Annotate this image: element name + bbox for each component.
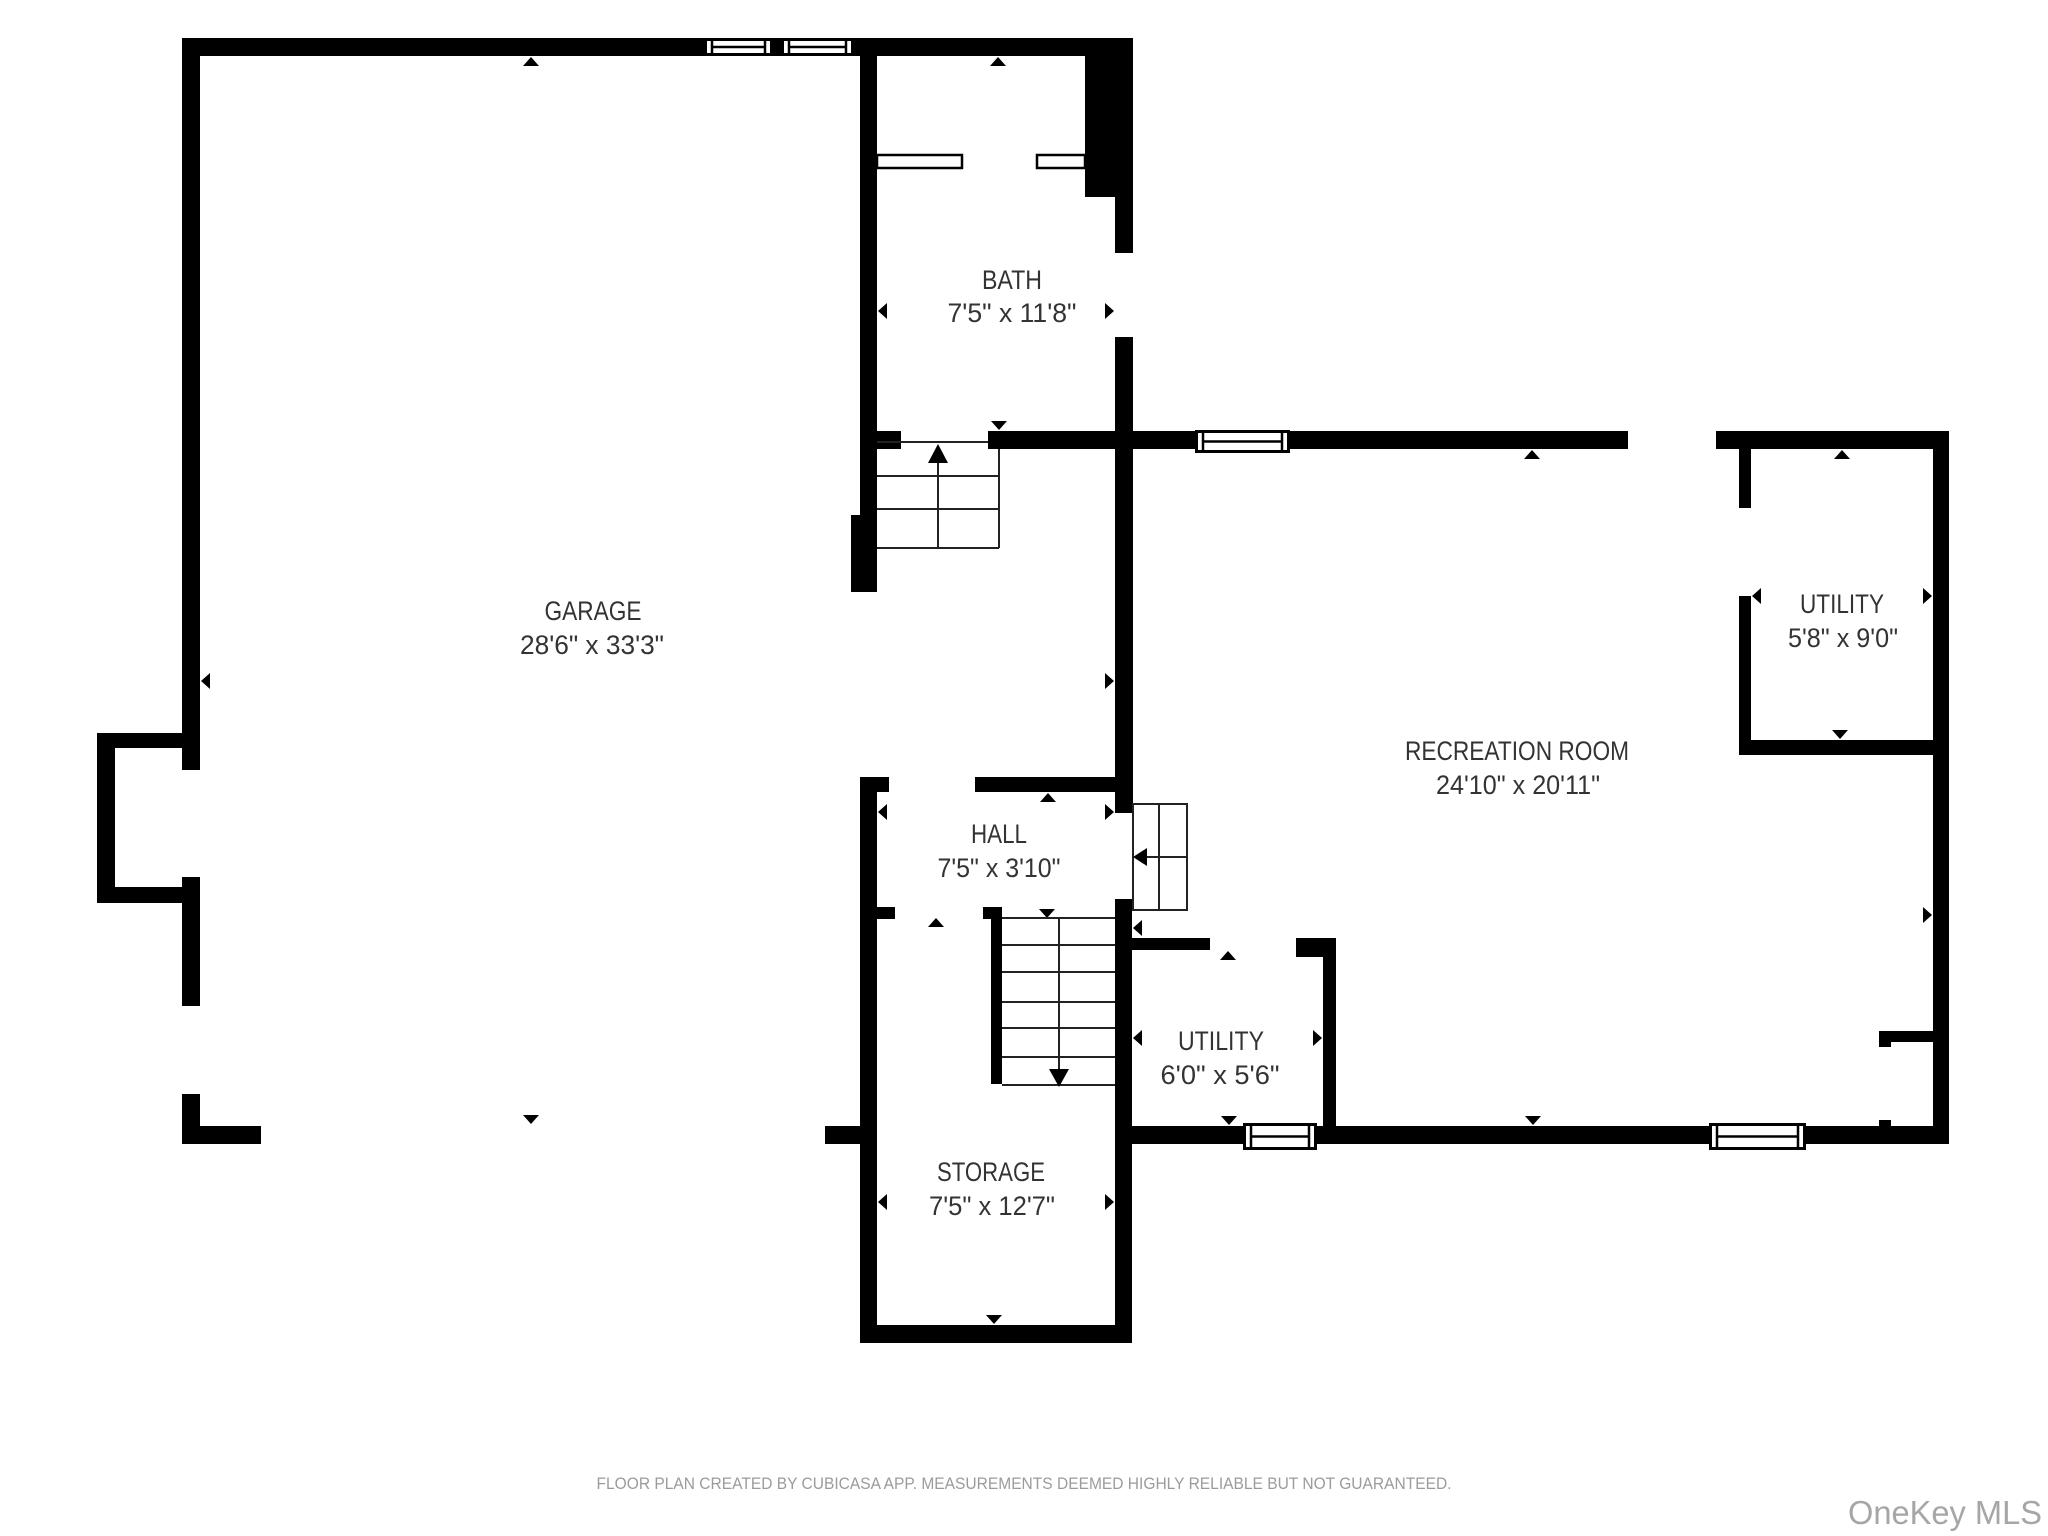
svg-text:28'6" x 33'3": 28'6" x 33'3" — [520, 630, 664, 660]
svg-text:HALL: HALL — [971, 819, 1027, 849]
svg-text:7'5" x 3'10": 7'5" x 3'10" — [938, 853, 1061, 883]
svg-text:BATH: BATH — [982, 265, 1042, 295]
svg-text:OneKey MLS: OneKey MLS — [1848, 1494, 2042, 1531]
svg-text:STORAGE: STORAGE — [937, 1157, 1045, 1187]
svg-text:24'10" x 20'11": 24'10" x 20'11" — [1436, 770, 1600, 800]
svg-text:FLOOR PLAN CREATED BY CUBICASA: FLOOR PLAN CREATED BY CUBICASA APP. MEAS… — [597, 1474, 1452, 1493]
svg-text:GARAGE: GARAGE — [545, 596, 642, 626]
svg-text:UTILITY: UTILITY — [1178, 1026, 1264, 1056]
svg-text:UTILITY: UTILITY — [1800, 589, 1884, 619]
svg-text:5'8" x 9'0": 5'8" x 9'0" — [1788, 623, 1898, 653]
svg-text:7'5" x 12'7": 7'5" x 12'7" — [929, 1191, 1055, 1221]
svg-text:RECREATION ROOM: RECREATION ROOM — [1405, 736, 1629, 766]
svg-text:6'0" x 5'6": 6'0" x 5'6" — [1161, 1060, 1280, 1090]
svg-text:7'5" x 11'8": 7'5" x 11'8" — [948, 298, 1077, 328]
